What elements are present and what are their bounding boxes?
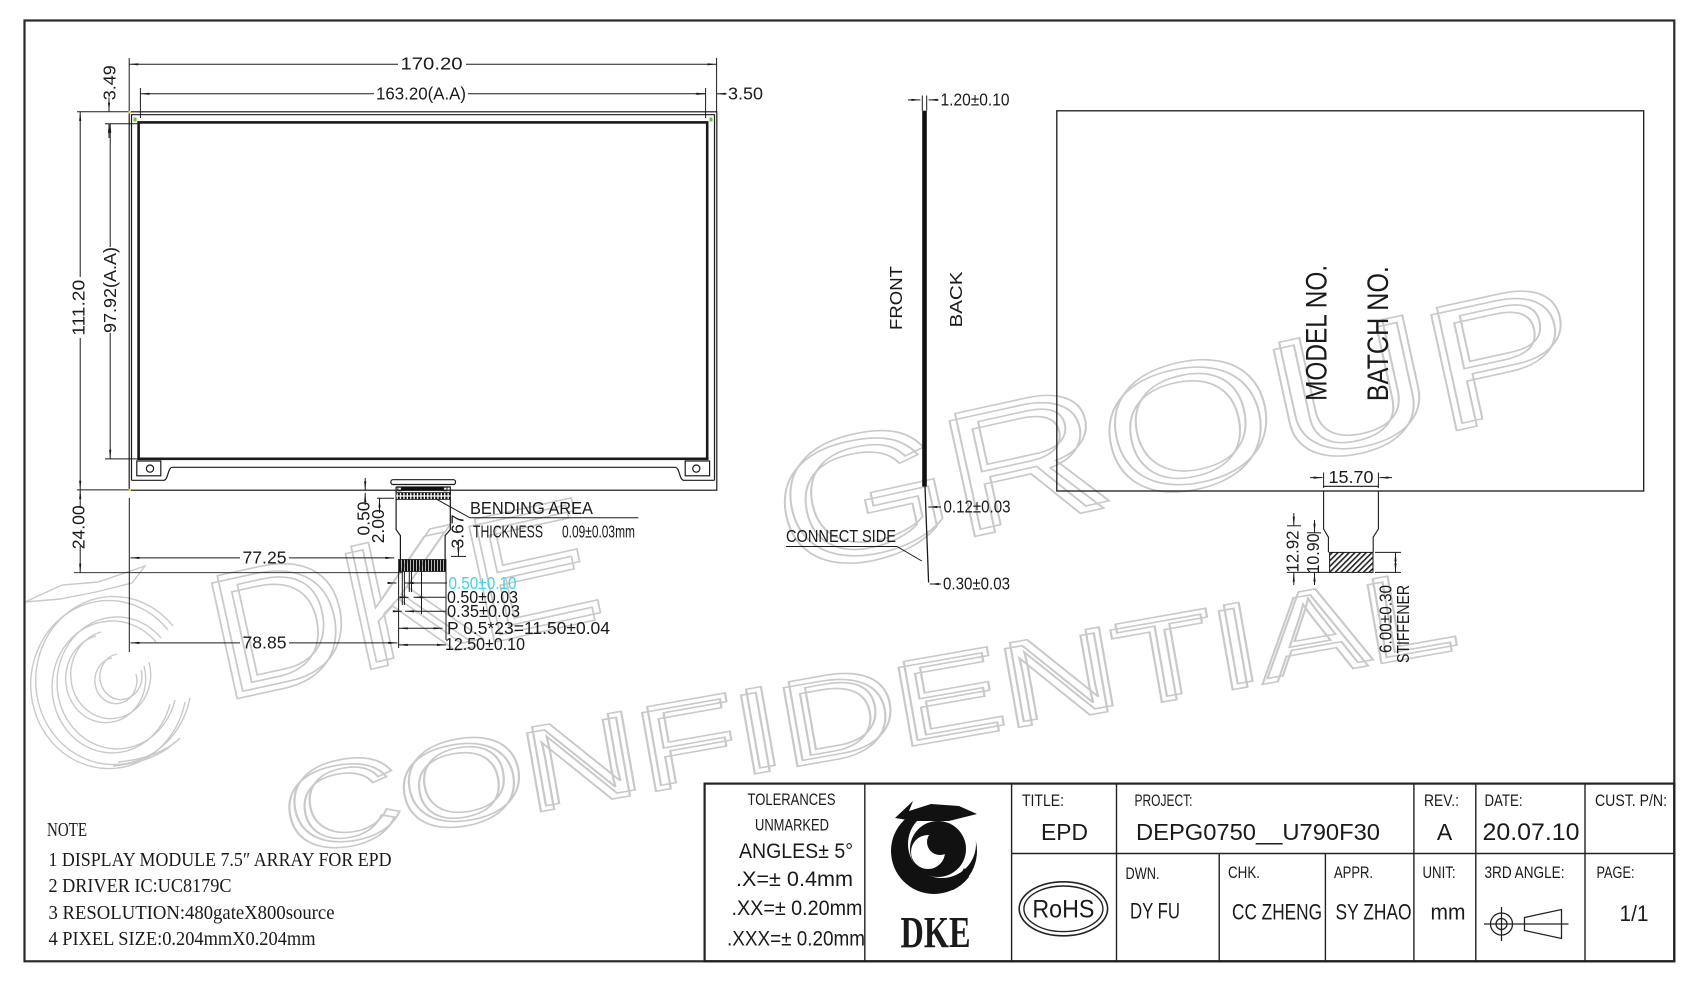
svg-text:78.85: 78.85 [243, 632, 287, 652]
svg-text:1 DISPLAY MODULE 7.5″ ARRAY F: 1 DISPLAY MODULE 7.5″ ARRAY FOR EPD [49, 849, 392, 871]
svg-text:10.90: 10.90 [1303, 533, 1323, 573]
svg-text:REV.:: REV.: [1424, 792, 1459, 810]
svg-text:BATCH NO.: BATCH NO. [1362, 266, 1395, 401]
svg-text:UNIT:: UNIT: [1423, 864, 1456, 882]
svg-text:97.92(A.A): 97.92(A.A) [100, 247, 120, 333]
svg-text:DWN.: DWN. [1126, 865, 1160, 883]
svg-text:DKE: DKE [901, 908, 971, 957]
svg-text:3.50: 3.50 [728, 83, 763, 103]
svg-text:TOLERANCES: TOLERANCES [748, 791, 836, 809]
svg-text:ANGLES± 5°: ANGLES± 5° [739, 840, 853, 863]
svg-text:SY ZHAO: SY ZHAO [1336, 900, 1412, 925]
svg-text:UNMARKED: UNMARKED [755, 817, 829, 835]
svg-text:3 RESOLUTION:480gateX800source: 3 RESOLUTION:480gateX800source [49, 902, 335, 924]
svg-text:NOTE: NOTE [47, 819, 87, 841]
svg-text:163.20(A.A): 163.20(A.A) [376, 83, 466, 103]
svg-text:A: A [1437, 819, 1453, 845]
svg-text:.XX=± 0.20mm: .XX=± 0.20mm [732, 897, 863, 920]
svg-text:EPD: EPD [1041, 819, 1088, 845]
svg-text:PROJECT:: PROJECT: [1135, 792, 1193, 810]
svg-text:3RD ANGLE:: 3RD ANGLE: [1485, 864, 1565, 882]
svg-text:1/1: 1/1 [1620, 901, 1649, 926]
svg-text:mm: mm [1431, 900, 1466, 925]
svg-text:MODEL NO.: MODEL NO. [1301, 265, 1334, 401]
svg-text:20.07.10: 20.07.10 [1483, 819, 1580, 846]
svg-text:CONNECT SIDE: CONNECT SIDE [786, 526, 896, 546]
svg-text:.XXX=± 0.20mm: .XXX=± 0.20mm [727, 928, 865, 951]
svg-text:3.49: 3.49 [100, 65, 120, 100]
svg-text:15.70: 15.70 [1329, 467, 1374, 487]
svg-text:CUST. P/N:: CUST. P/N: [1595, 792, 1667, 810]
svg-text:APPR.: APPR. [1334, 864, 1373, 882]
svg-text:CC ZHENG: CC ZHENG [1232, 900, 1322, 925]
svg-text:DATE:: DATE: [1485, 792, 1523, 810]
svg-text:BENDING AREA: BENDING AREA [470, 498, 593, 518]
svg-text:12.92: 12.92 [1283, 531, 1303, 573]
svg-text:0.30±0.03: 0.30±0.03 [943, 574, 1010, 594]
svg-text:2 DRIVER IC:UC8179C: 2 DRIVER IC:UC8179C [49, 875, 232, 897]
svg-text:DY FU: DY FU [1130, 899, 1180, 924]
svg-text:PAGE:: PAGE: [1597, 864, 1635, 882]
svg-text:2.00: 2.00 [368, 509, 388, 543]
svg-text:RoHS: RoHS [1032, 896, 1094, 924]
svg-text:FRONT: FRONT [886, 266, 906, 330]
svg-text:1.20±0.10: 1.20±0.10 [941, 89, 1010, 109]
svg-text:TITLE:: TITLE: [1022, 792, 1064, 810]
svg-text:THICKNESS: THICKNESS [473, 522, 543, 542]
svg-text:111.20: 111.20 [69, 280, 89, 336]
svg-text:.X=± 0.4mm: .X=± 0.4mm [736, 868, 853, 891]
svg-text:4 PIXEL SIZE:0.204mmX0.204mm: 4 PIXEL SIZE:0.204mmX0.204mm [49, 928, 316, 950]
svg-text:3.67: 3.67 [448, 515, 468, 549]
svg-text:0.09±0.03mm: 0.09±0.03mm [562, 522, 635, 542]
svg-text:CHK.: CHK. [1228, 864, 1260, 882]
svg-text:0.12±0.03: 0.12±0.03 [944, 497, 1011, 517]
svg-text:DEPG0750__U790F30: DEPG0750__U790F30 [1136, 819, 1380, 845]
svg-text:12.50±0.10: 12.50±0.10 [445, 634, 525, 654]
svg-text:24.00: 24.00 [69, 505, 89, 549]
svg-text:77.25: 77.25 [243, 547, 287, 567]
svg-text:STIFFENER: STIFFENER [1393, 585, 1413, 663]
svg-text:BACK: BACK [946, 271, 966, 327]
svg-text:170.20: 170.20 [401, 54, 463, 74]
